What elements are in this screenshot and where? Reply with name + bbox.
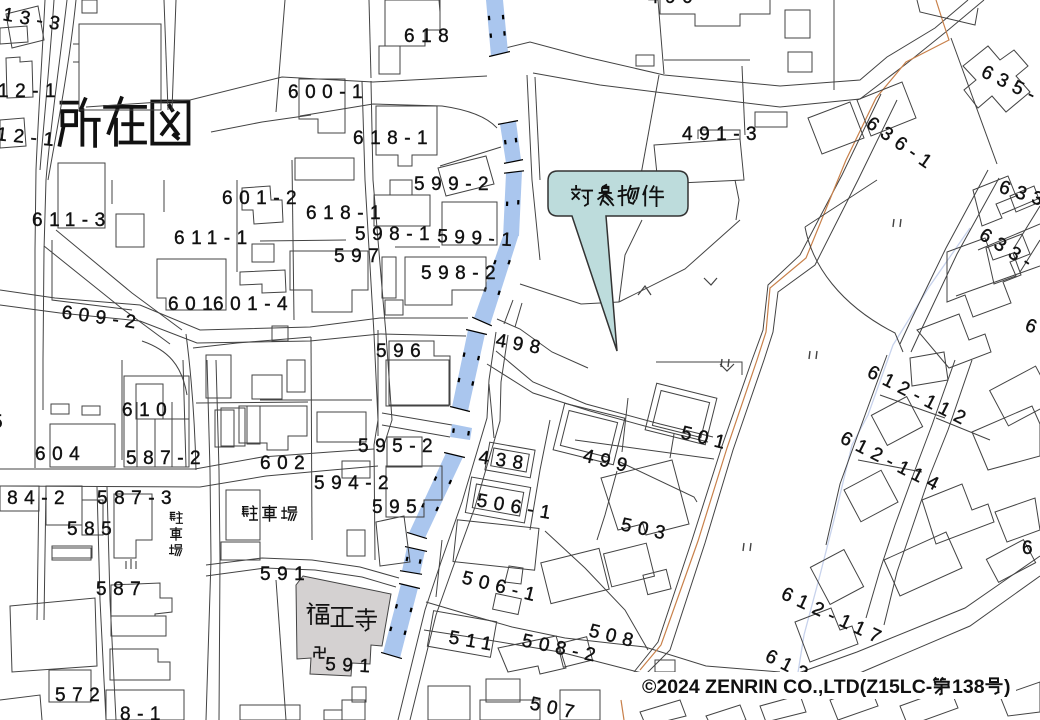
svg-text:138: 138 xyxy=(952,676,985,698)
svg-text:©2024 ZENRIN CO.,LTD(Z15LC-: ©2024 ZENRIN CO.,LTD(Z15LC- xyxy=(642,676,932,698)
svg-text:599-2: 599-2 xyxy=(414,174,495,195)
svg-text:585: 585 xyxy=(67,519,118,540)
svg-text:598-2: 598-2 xyxy=(421,263,502,284)
svg-text:595: 595 xyxy=(372,497,423,518)
svg-text:595-2: 595-2 xyxy=(358,436,439,457)
svg-text:604: 604 xyxy=(35,444,86,465)
svg-text:594-2: 594-2 xyxy=(314,473,395,494)
svg-text:601-4: 601-4 xyxy=(213,294,294,315)
svg-text:618-1: 618-1 xyxy=(306,203,387,224)
svg-text:597: 597 xyxy=(334,246,385,267)
svg-text:618: 618 xyxy=(404,26,455,47)
svg-text:8-1: 8-1 xyxy=(120,704,167,720)
svg-text:601-2: 601-2 xyxy=(222,188,303,209)
svg-text:602: 602 xyxy=(260,453,311,474)
svg-text:6: 6 xyxy=(1022,538,1039,559)
svg-text:611-1: 611-1 xyxy=(174,228,254,249)
svg-text:12-1: 12-1 xyxy=(0,81,62,102)
svg-text:572: 572 xyxy=(55,685,106,706)
svg-text:599-1: 599-1 xyxy=(437,226,519,251)
svg-text:490: 490 xyxy=(648,0,699,8)
svg-text:491-3: 491-3 xyxy=(682,124,763,145)
svg-text:587-2: 587-2 xyxy=(126,448,207,469)
svg-text:591: 591 xyxy=(325,654,377,678)
svg-text:): ) xyxy=(1004,676,1011,698)
svg-text:610: 610 xyxy=(122,400,173,421)
svg-text:584-2: 584-2 xyxy=(0,488,71,509)
svg-text:587-3: 587-3 xyxy=(97,488,178,509)
svg-text:591: 591 xyxy=(260,564,311,585)
svg-text:600-1: 600-1 xyxy=(288,82,369,103)
svg-text:618-1: 618-1 xyxy=(353,128,434,149)
svg-text:598-1: 598-1 xyxy=(355,224,436,245)
svg-text:587: 587 xyxy=(96,579,147,600)
svg-text:5: 5 xyxy=(0,412,9,433)
svg-text:611-3: 611-3 xyxy=(32,210,112,231)
svg-text:601: 601 xyxy=(168,294,219,315)
svg-text:596: 596 xyxy=(376,341,427,362)
